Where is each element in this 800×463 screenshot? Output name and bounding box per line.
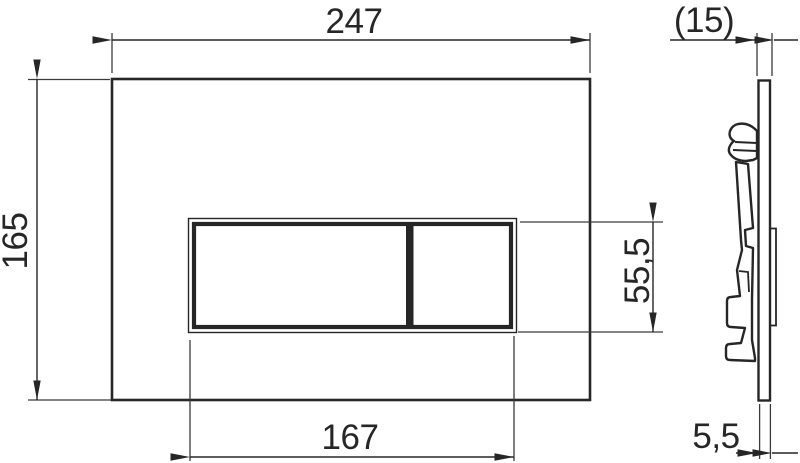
front-view <box>112 79 590 400</box>
side-view <box>726 81 776 401</box>
label-button-width: 167 <box>322 418 379 457</box>
label-button-height: 55,5 <box>618 238 657 304</box>
button-divider <box>406 226 414 326</box>
side-clip-body <box>726 162 755 361</box>
side-plate-profile <box>759 81 771 401</box>
label-depth: (15) <box>674 1 734 40</box>
flush-plate-technical-drawing: 247 (15) 165 55,5 167 5,5 <box>0 0 800 463</box>
label-overall-height: 165 <box>0 213 35 270</box>
drawing-canvas: 247 (15) 165 55,5 167 5,5 <box>0 0 800 463</box>
label-thickness: 5,5 <box>692 417 739 456</box>
label-overall-width: 247 <box>326 2 383 41</box>
button-panel-frame <box>194 224 511 327</box>
